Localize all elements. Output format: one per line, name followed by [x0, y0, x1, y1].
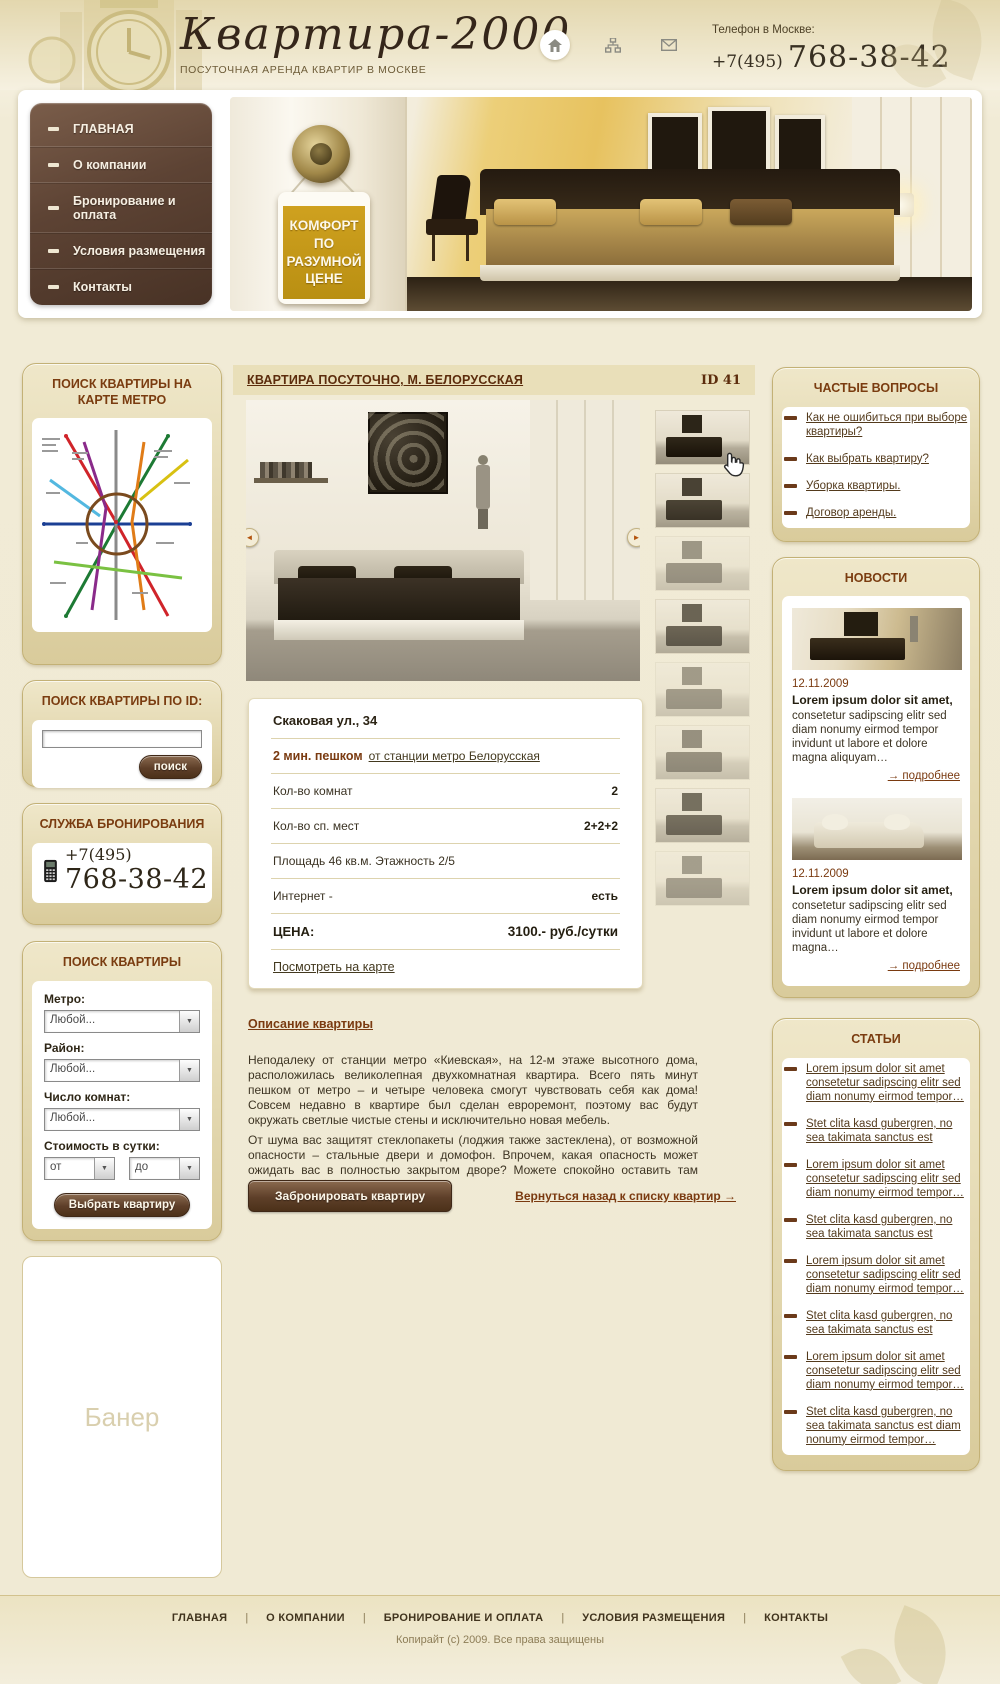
article-link: Stet clita kasd gubergren, no sea takima…: [806, 1213, 968, 1241]
internet-value: есть: [592, 889, 618, 903]
hero-bed: [480, 169, 900, 289]
apartment-search-box: ПОИСК КВАРТИРЫ Метро: Любой... ▼ Район: …: [22, 941, 222, 1241]
gallery-prev-button[interactable]: ◄: [246, 528, 259, 547]
article-link: Lorem ipsum dolor sit amet consetetur sa…: [806, 1062, 968, 1104]
metro-search-title: ПОИСК КВАРТИРЫ НА КАРТЕ МЕТРО: [23, 364, 221, 418]
mail-icon[interactable]: [656, 32, 682, 58]
district-field-label: Район:: [44, 1041, 200, 1055]
dash-bullet-icon: [784, 1122, 797, 1126]
description-heading-link[interactable]: Описание квартиры: [248, 1017, 373, 1031]
chevron-down-icon: ▼: [179, 1109, 199, 1130]
right-sidebar: ЧАСТЫЕ ВОПРОСЫ Как не ошибиться при выбо…: [772, 367, 980, 1471]
booking-service-box: СЛУЖБА БРОНИРОВАНИЯ +7(495) 768-38-42: [22, 803, 222, 925]
top-panel: ГЛАВНАЯ О компании Бронирование и оплата…: [18, 90, 982, 318]
news-title: НОВОСТИ: [773, 558, 979, 597]
faq-link: Как не ошибиться при выборе квартиры?: [806, 411, 968, 439]
dash-bullet-icon: [784, 484, 797, 488]
faq-link: Как выбрать квартиру?: [806, 452, 929, 466]
photo-person: [474, 455, 492, 529]
main-menu: ГЛАВНАЯ О компании Бронирование и оплата…: [30, 103, 212, 305]
header: Квартира-2000 ПОСУТОЧНАЯ АРЕНДА КВАРТИР …: [0, 0, 1000, 90]
dash-bullet-icon: [784, 1259, 797, 1263]
internet-label: Интернет -: [273, 889, 333, 903]
dash-bullet-icon: [784, 511, 797, 515]
metro-station-link[interactable]: от станции метро Белорусская: [369, 749, 540, 763]
menu-item-home[interactable]: ГЛАВНАЯ: [30, 111, 212, 147]
articles-box: СТАТЬИ Lorem ipsum dolor sit amet conset…: [772, 1018, 980, 1471]
menu-item-label: О компании: [73, 158, 146, 172]
news-item-text: consetetur sadipscing elitr sed diam non…: [792, 709, 960, 765]
beds-value: 2+2+2: [584, 819, 618, 833]
banner-placeholder: Банер: [22, 1256, 222, 1578]
rooms-value: 2: [611, 784, 618, 798]
article-item[interactable]: Stet clita kasd gubergren, no sea takima…: [784, 1309, 968, 1337]
footer-link-about[interactable]: О КОМПАНИИ: [266, 1612, 345, 1624]
banner-label: Банер: [85, 1402, 160, 1433]
faq-item[interactable]: Уборка квартиры.: [784, 479, 968, 493]
booking-phone-number: 768-38-42: [65, 864, 208, 895]
phone-label: Телефон в Москве:: [712, 24, 942, 36]
news-image-sofa: [792, 798, 962, 860]
logo-text: Квартира-2000: [180, 8, 510, 62]
article-link: Stet clita kasd gubergren, no sea takima…: [806, 1117, 968, 1145]
footer-nav: ГЛАВНАЯ | О КОМПАНИИ | БРОНИРОВАНИЕ И ОП…: [0, 1612, 1000, 1624]
article-item[interactable]: Lorem ipsum dolor sit amet consetetur sa…: [784, 1062, 968, 1104]
chevron-down-icon: ▼: [179, 1011, 199, 1032]
rooms-label: Кол-во комнат: [273, 784, 353, 798]
hero-image: КОМФОРТ ПО РАЗУМНОЙ ЦЕНЕ: [230, 97, 972, 311]
header-icons: [540, 30, 682, 60]
booking-phone-prefix: +7(495): [65, 845, 208, 864]
news-item-text: consetetur sadipscing elitr sed diam non…: [792, 899, 960, 955]
faq-link: Договор аренды.: [806, 506, 896, 520]
news-item: 12.11.2009 Lorem ipsum dolor sit amet, c…: [792, 798, 960, 972]
metro-map[interactable]: [36, 422, 198, 628]
copyright: Копирайт (с) 2009. Все права защищены: [0, 1634, 1000, 1646]
dash-bullet-icon: [48, 127, 59, 131]
apartment-details-card: Скаковая ул., 34 2 мин. пешком от станци…: [248, 698, 643, 989]
article-item[interactable]: Stet clita kasd gubergren, no sea takima…: [784, 1213, 968, 1241]
faq-item[interactable]: Как не ошибиться при выборе квартиры?: [784, 411, 968, 439]
price-to-value: до: [130, 1158, 179, 1179]
footer-separator: |: [363, 1612, 366, 1624]
comfort-tag-text: КОМФОРТ ПО РАЗУМНОЙ ЦЕНЕ: [283, 217, 365, 287]
menu-item-booking[interactable]: Бронирование и оплата: [30, 183, 212, 233]
rooms-select[interactable]: Любой... ▼: [44, 1108, 200, 1131]
article-item[interactable]: Lorem ipsum dolor sit amet consetetur sa…: [784, 1158, 968, 1200]
dash-bullet-icon: [784, 457, 797, 461]
chevron-down-icon: ▼: [179, 1158, 199, 1179]
choose-apartment-button[interactable]: Выбрать квартиру: [54, 1193, 190, 1217]
gallery-thumbnail[interactable]: [655, 788, 750, 843]
photo-wardrobe: [530, 400, 640, 600]
chevron-down-icon: ▼: [179, 1060, 199, 1081]
news-more-link[interactable]: → подробнее: [792, 770, 960, 782]
menu-item-label: Бронирование и оплата: [73, 194, 212, 222]
booking-phone: +7(495) 768-38-42: [65, 845, 208, 897]
rooms-select-value: Любой...: [45, 1109, 179, 1130]
footer-link-booking[interactable]: БРОНИРОВАНИЕ И ОПЛАТА: [384, 1612, 544, 1624]
id-search-input[interactable]: [42, 730, 202, 748]
phone-icon: [44, 845, 57, 897]
news-image-bedroom: [792, 608, 962, 670]
footer-link-contacts[interactable]: КОНТАКТЫ: [764, 1612, 828, 1624]
phone-prefix: +7(495): [712, 52, 783, 72]
news-item-title: Lorem ipsum dolor sit amet,: [792, 883, 960, 897]
menu-item-terms[interactable]: Условия размещения: [30, 233, 212, 269]
comfort-tag: КОМФОРТ ПО РАЗУМНОЙ ЦЕНЕ: [278, 192, 370, 304]
mouse-cursor-hand: [719, 451, 745, 479]
gallery-thumbnail[interactable]: [655, 725, 750, 780]
news-item: 12.11.2009 Lorem ipsum dolor sit amet, c…: [792, 608, 960, 782]
footer: ГЛАВНАЯ | О КОМПАНИИ | БРОНИРОВАНИЕ И ОП…: [0, 1595, 1000, 1684]
price-label: ЦЕНА:: [273, 924, 314, 939]
district-select-value: Любой...: [45, 1060, 179, 1081]
price-from-value: от: [45, 1158, 94, 1179]
dash-bullet-icon: [48, 285, 59, 289]
book-apartment-button[interactable]: Забронировать квартиру: [248, 1180, 452, 1212]
rooms-field-label: Число комнат:: [44, 1090, 200, 1104]
article-item[interactable]: Lorem ipsum dolor sit amet consetetur sa…: [784, 1254, 968, 1296]
gallery-main-photo[interactable]: ◄ ►: [246, 400, 640, 681]
dash-bullet-icon: [784, 1067, 797, 1071]
price-from-select[interactable]: от ▼: [44, 1157, 115, 1180]
photo-artwork-pattern: [368, 412, 444, 490]
gallery-next-button[interactable]: ►: [627, 528, 640, 547]
gallery-thumbnail[interactable]: [655, 662, 750, 717]
price-to-select[interactable]: до ▼: [129, 1157, 200, 1180]
dash-bullet-icon: [784, 1314, 797, 1318]
menu-item-label: Условия размещения: [73, 244, 205, 258]
news-more-link[interactable]: → подробнее: [792, 960, 960, 972]
chevron-down-icon: ▼: [94, 1158, 114, 1179]
footer-separator: |: [245, 1612, 248, 1624]
footer-separator: |: [743, 1612, 746, 1624]
next-arrow-icon: ►: [633, 533, 640, 542]
news-date: 12.11.2009: [792, 678, 960, 690]
home-icon[interactable]: [540, 30, 570, 60]
faq-box: ЧАСТЫЕ ВОПРОСЫ Как не ошибиться при выбо…: [772, 367, 980, 542]
district-select[interactable]: Любой... ▼: [44, 1059, 200, 1082]
area-floor: Площадь 46 кв.м. Этажность 2/5: [273, 854, 455, 868]
article-link: Lorem ipsum dolor sit amet consetetur sa…: [806, 1254, 968, 1296]
apartment-title-link[interactable]: КВАРТИРА ПОСУТОЧНО, М. БЕЛОРУССКАЯ: [247, 373, 523, 387]
id-search-box: ПОИСК КВАРТИРЫ ПО ID: поиск: [22, 680, 222, 787]
footer-separator: |: [561, 1612, 564, 1624]
metro-select[interactable]: Любой... ▼: [44, 1010, 200, 1033]
price-value: 3100.- руб./сутки: [508, 924, 618, 939]
gallery-thumbnails: [655, 410, 755, 914]
faq-link: Уборка квартиры.: [806, 479, 900, 493]
faq-item[interactable]: Как выбрать квартиру?: [784, 452, 968, 466]
logo-tagline: ПОСУТОЧНАЯ АРЕНДА КВАРТИР В МОСКВЕ: [180, 64, 510, 76]
faq-item[interactable]: Договор аренды.: [784, 506, 968, 520]
dash-bullet-icon: [784, 1163, 797, 1167]
hero-chair: [426, 175, 480, 261]
dash-bullet-icon: [784, 1218, 797, 1222]
dash-bullet-icon: [784, 416, 797, 420]
menu-item-label: ГЛАВНАЯ: [73, 122, 134, 136]
article-item[interactable]: Stet clita kasd gubergren, no sea takima…: [784, 1117, 968, 1145]
gallery-thumbnail[interactable]: [655, 851, 750, 906]
apartment-address: Скаковая ул., 34: [273, 713, 377, 728]
booking-title: СЛУЖБА БРОНИРОВАНИЯ: [23, 804, 221, 843]
gallery-thumbnail[interactable]: [655, 599, 750, 654]
dash-bullet-icon: [784, 1410, 797, 1414]
sitemap-icon[interactable]: [600, 32, 626, 58]
menu-item-contacts[interactable]: Контакты: [30, 269, 212, 304]
left-sidebar: ПОИСК КВАРТИРЫ НА КАРТЕ МЕТРО: [22, 363, 222, 1578]
gallery-thumbnail[interactable]: [655, 536, 750, 591]
dash-bullet-icon: [48, 206, 59, 210]
article-link: Stet clita kasd gubergren, no sea takima…: [806, 1405, 968, 1447]
footer-link-home[interactable]: ГЛАВНАЯ: [172, 1612, 227, 1624]
page-title-bar: КВАРТИРА ПОСУТОЧНО, М. БЕЛОРУССКАЯ ID 41: [233, 365, 755, 395]
photo-shelf: [254, 478, 328, 483]
menu-item-about[interactable]: О компании: [30, 147, 212, 183]
dash-bullet-icon: [48, 163, 59, 167]
metro-field-label: Метро:: [44, 992, 200, 1006]
faq-title: ЧАСТЫЕ ВОПРОСЫ: [773, 368, 979, 407]
menu-item-label: Контакты: [73, 280, 132, 294]
dash-bullet-icon: [784, 1355, 797, 1359]
description-paragraph: Неподалеку от станции метро «Киевская», …: [248, 1053, 698, 1128]
main-content: КВАРТИРА ПОСУТОЧНО, М. БЕЛОРУССКАЯ ID 41…: [233, 365, 755, 1265]
news-box: НОВОСТИ 12.11.2009 Lorem ipsum dolor sit…: [772, 557, 980, 999]
photo-bed: [274, 550, 524, 650]
prev-arrow-icon: ◄: [246, 533, 253, 542]
action-row: Забронировать квартиру Вернуться назад к…: [248, 1180, 736, 1212]
article-link: Lorem ipsum dolor sit amet consetetur sa…: [806, 1350, 968, 1392]
beds-label: Кол-во сп. мест: [273, 819, 359, 833]
id-search-button[interactable]: поиск: [139, 755, 202, 779]
article-link: Stet clita kasd gubergren, no sea takima…: [806, 1309, 968, 1337]
articles-title: СТАТЬИ: [773, 1019, 979, 1058]
logo-link[interactable]: Квартира-2000 ПОСУТОЧНАЯ АРЕНДА КВАРТИР …: [180, 8, 510, 76]
article-item[interactable]: Lorem ipsum dolor sit amet consetetur sa…: [784, 1350, 968, 1392]
metro-search-box: ПОИСК КВАРТИРЫ НА КАРТЕ МЕТРО: [22, 363, 222, 665]
hero-wall-frame: [775, 115, 825, 177]
price-field-label: Стоимость в сутки:: [44, 1139, 200, 1153]
article-link: Lorem ipsum dolor sit amet consetetur sa…: [806, 1158, 968, 1200]
apartment-id: ID 41: [701, 373, 741, 388]
photo-books: [260, 462, 312, 478]
gallery-thumbnail[interactable]: [655, 473, 750, 528]
view-on-map-link[interactable]: Посмотреть на карте: [273, 960, 395, 974]
news-date: 12.11.2009: [792, 868, 960, 880]
door-knob: [292, 125, 350, 183]
id-search-title: ПОИСК КВАРТИРЫ ПО ID:: [23, 681, 221, 720]
dash-bullet-icon: [48, 249, 59, 253]
news-item-title: Lorem ipsum dolor sit amet,: [792, 693, 960, 707]
footer-link-terms[interactable]: УСЛОВИЯ РАЗМЕЩЕНИЯ: [582, 1612, 725, 1624]
article-item[interactable]: Stet clita kasd gubergren, no sea takima…: [784, 1405, 968, 1447]
metro-select-value: Любой...: [45, 1011, 179, 1032]
back-to-list-link[interactable]: Вернуться назад к списку квартир →: [515, 1189, 736, 1203]
apartment-search-title: ПОИСК КВАРТИРЫ: [23, 942, 221, 981]
page: Квартира-2000 ПОСУТОЧНАЯ АРЕНДА КВАРТИР …: [0, 0, 1000, 1684]
walk-time: 2 мин. пешком: [273, 749, 363, 763]
